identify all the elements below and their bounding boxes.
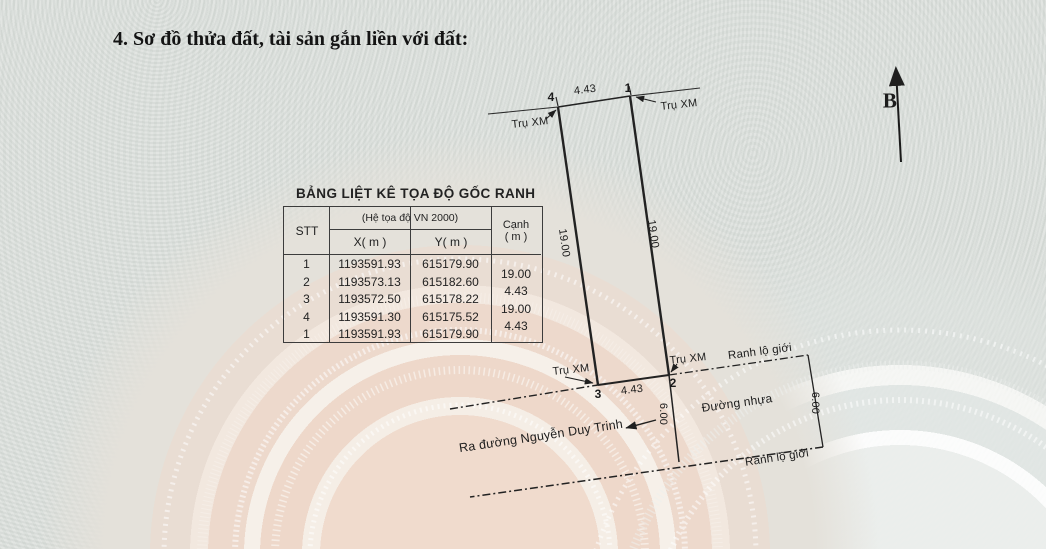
cell-stt: 1 (284, 327, 329, 341)
column-header-edge-2: ( m ) (505, 231, 528, 243)
north-label: B (883, 89, 897, 114)
edge-length-value: 4.43 (491, 284, 541, 298)
cell-y: 615179.90 (410, 257, 491, 271)
column-header-edge-1: Cạnh (503, 219, 529, 231)
coordinate-table: STT (Hệ tọa độ VN 2000) X( m ) Y( m ) Cạ… (283, 206, 543, 343)
column-header-coord-system: (Hệ tọa độ VN 2000) (362, 212, 458, 224)
table-row: 1 1193591.93 615179.90 (284, 325, 491, 343)
road-width-label-inner: 6.00 (657, 403, 669, 425)
edge-length-value: 4.43 (491, 319, 541, 333)
vertex-label-4: 4 (548, 90, 555, 104)
cell-y: 615179.90 (410, 327, 491, 341)
cell-y: 615182.60 (410, 275, 491, 289)
post-arrow-top-right (636, 97, 656, 102)
cell-x: 1193591.30 (329, 310, 410, 324)
cell-stt: 1 (284, 257, 329, 271)
post-arrow-bottom-left (565, 377, 593, 383)
column-header-x: X( m ) (354, 235, 387, 249)
edge-length-value: 19.00 (491, 302, 541, 316)
road-width-label-outer: 6.00 (809, 392, 821, 414)
scanned-land-certificate-page: 4. Sơ đồ thửa đất, tài sản gắn liền với … (0, 0, 1046, 549)
cell-x: 1193591.93 (329, 327, 410, 341)
cell-y: 615178.22 (410, 292, 491, 306)
column-header-stt: STT (296, 224, 319, 238)
vertex-label-3: 3 (595, 387, 602, 401)
column-header-y: Y( m ) (435, 235, 468, 249)
table-row: 1 1193591.93 615179.90 (284, 255, 491, 273)
cell-x: 1193572.50 (329, 292, 410, 306)
edge-length-value: 19.00 (491, 267, 541, 281)
cell-x: 1193591.93 (329, 257, 410, 271)
table-row: 3 1193572.50 615178.22 (284, 290, 491, 308)
north-arrow (896, 70, 901, 162)
vertex-label-2: 2 (670, 376, 677, 390)
page-title: 4. Sơ đồ thửa đất, tài sản gắn liền với … (113, 28, 468, 51)
cell-x: 1193573.13 (329, 275, 410, 289)
table-header-divider (329, 229, 491, 230)
parcel-edge-top (558, 96, 630, 107)
cell-stt: 3 (284, 292, 329, 306)
table-row: 4 1193591.30 615175.52 (284, 308, 491, 326)
table-row: 2 1193573.13 615182.60 (284, 273, 491, 291)
street-direction-arrow (626, 420, 656, 428)
coordinate-table-title: BẢNG LIỆT KÊ TỌA ĐỘ GỐC RANH (296, 186, 535, 201)
cell-y: 615175.52 (410, 310, 491, 324)
vertex-label-1: 1 (625, 81, 632, 95)
road-boundary-line-left (450, 385, 598, 409)
cell-stt: 4 (284, 310, 329, 324)
cell-stt: 2 (284, 275, 329, 289)
